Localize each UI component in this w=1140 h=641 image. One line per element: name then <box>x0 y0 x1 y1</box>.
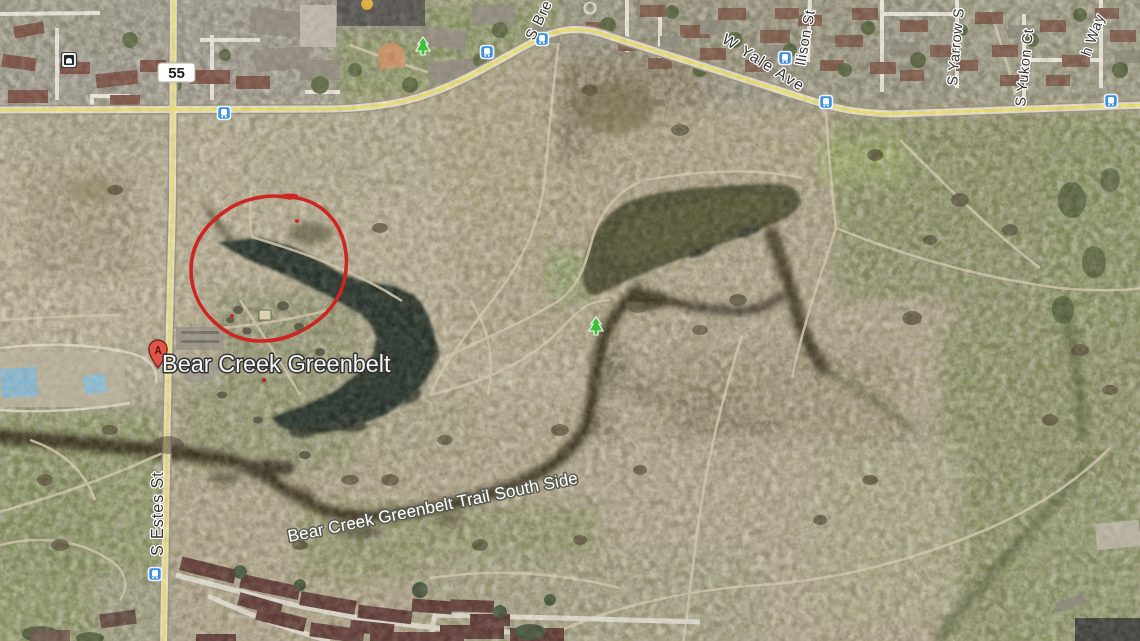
svg-text:A: A <box>154 345 161 356</box>
svg-text:Bear Creek Greenbelt: Bear Creek Greenbelt <box>162 351 391 377</box>
svg-text:S Estes St: S Estes St <box>149 471 166 556</box>
svg-text:55: 55 <box>168 64 185 81</box>
